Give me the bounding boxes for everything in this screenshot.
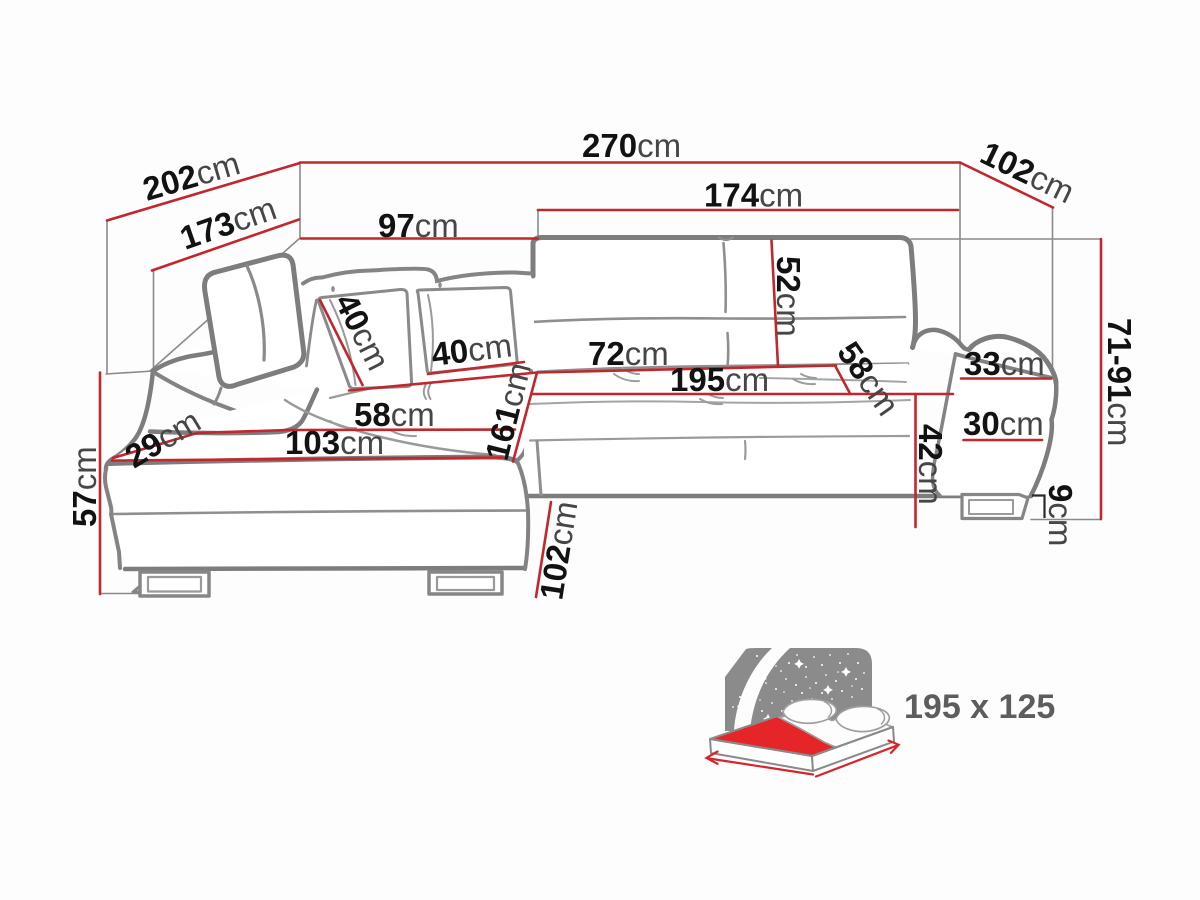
svg-text:174cm: 174cm xyxy=(704,177,803,214)
svg-text:195 x 125: 195 x 125 xyxy=(904,688,1055,726)
svg-text:97cm: 97cm xyxy=(378,207,459,244)
svg-text:9cm: 9cm xyxy=(1042,484,1079,546)
svg-text:103cm: 103cm xyxy=(285,424,384,461)
svg-text:72cm: 72cm xyxy=(588,335,669,372)
svg-text:30cm: 30cm xyxy=(963,405,1044,442)
svg-text:195cm: 195cm xyxy=(670,361,769,398)
svg-text:270cm: 270cm xyxy=(582,127,681,164)
svg-text:33cm: 33cm xyxy=(964,345,1045,382)
svg-text:42cm: 42cm xyxy=(912,424,949,505)
svg-text:71-91cm: 71-91cm xyxy=(1101,318,1138,446)
svg-text:52cm: 52cm xyxy=(770,256,807,337)
svg-text:57cm: 57cm xyxy=(66,446,103,527)
